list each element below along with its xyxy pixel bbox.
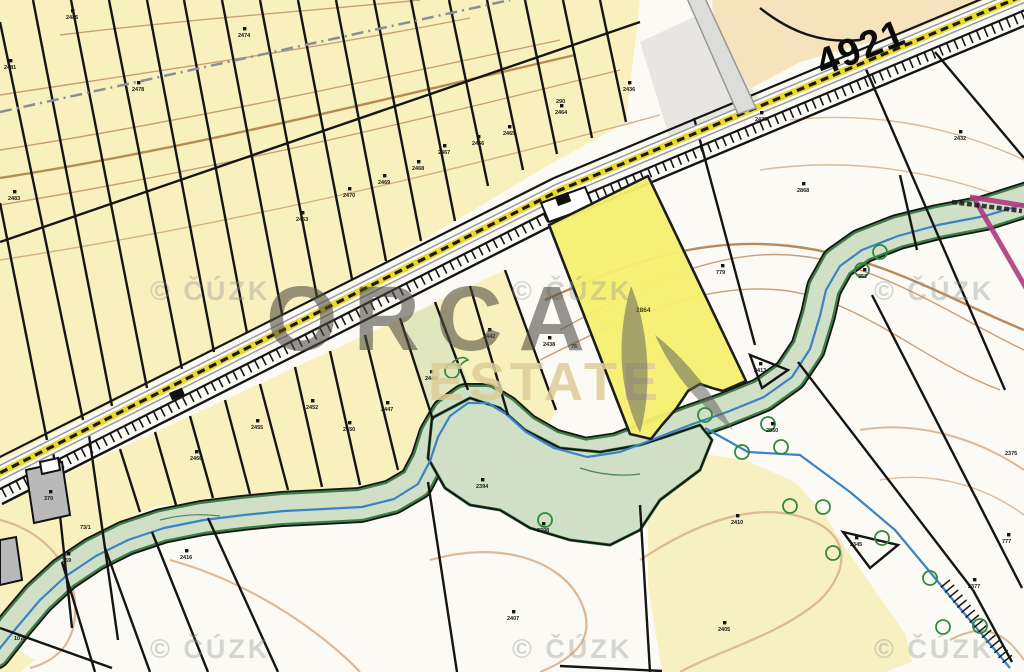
cuzk-copyright-watermark: © ČÚZK bbox=[150, 275, 270, 306]
cuzk-copyright-watermark: © ČÚZK bbox=[512, 633, 632, 664]
parcel-number: 2375 bbox=[1005, 451, 1017, 457]
landuse-symbol bbox=[760, 111, 763, 114]
parcel-number: 73/1 bbox=[80, 525, 91, 531]
parcel-number: 2465 bbox=[503, 131, 515, 137]
landuse-symbol bbox=[67, 552, 70, 555]
parcel-number: 2466 bbox=[472, 141, 484, 147]
landuse-symbol bbox=[721, 264, 724, 267]
landuse-symbol bbox=[855, 536, 858, 539]
landuse-symbol bbox=[443, 144, 446, 147]
parcel-number: 2394 bbox=[476, 484, 489, 490]
tree-icon bbox=[875, 531, 889, 545]
landuse-symbol bbox=[863, 268, 866, 271]
landuse-symbol bbox=[771, 422, 774, 425]
field-bottom-right bbox=[648, 452, 912, 672]
parcel-number: 2470 bbox=[343, 193, 355, 199]
cuzk-copyright-watermark: © ČÚZK bbox=[150, 633, 270, 664]
landuse-symbol bbox=[386, 401, 389, 404]
parcel-number: 2410 bbox=[731, 520, 743, 526]
parcel-number: 370 bbox=[44, 496, 53, 502]
landuse-symbol bbox=[973, 578, 976, 581]
cadastral-map-viewport: 2864 24812483247824852474246324702469246… bbox=[0, 0, 1024, 672]
landuse-symbol bbox=[243, 27, 246, 30]
landuse-symbol bbox=[723, 621, 726, 624]
parcel-number: 2483 bbox=[8, 196, 20, 202]
parcel-number: 2455 bbox=[251, 425, 263, 431]
parcel-number: 2467 bbox=[438, 150, 450, 156]
building-1-annex bbox=[40, 458, 60, 474]
parcel-number: 2405 bbox=[718, 627, 730, 633]
tree-icon bbox=[816, 500, 830, 514]
landuse-symbol bbox=[71, 9, 74, 12]
parcel-number: 2868 bbox=[797, 188, 809, 194]
parcel-number: 1079 bbox=[14, 636, 26, 642]
landuse-symbol bbox=[348, 187, 351, 190]
landuse-symbol bbox=[542, 522, 545, 525]
parcel-number: 779 bbox=[716, 270, 725, 276]
parcel-number: 2469 bbox=[378, 180, 390, 186]
landuse-symbol bbox=[195, 450, 198, 453]
parcel-number: 777 bbox=[1002, 539, 1011, 545]
parcel-number: 2413 bbox=[754, 368, 766, 374]
landuse-symbol bbox=[512, 610, 515, 613]
landuse-symbol bbox=[759, 362, 762, 365]
parcel-number: 2436 bbox=[623, 87, 635, 93]
parcel-number: 2416 bbox=[180, 555, 192, 561]
parcel-number: 2430 bbox=[755, 117, 767, 123]
landuse-symbol bbox=[481, 478, 484, 481]
parcel-number: 2432 bbox=[954, 136, 966, 142]
parcel-number: 2474 bbox=[238, 33, 251, 39]
parcel-number: 2850 bbox=[766, 428, 778, 434]
tree-icon bbox=[774, 440, 788, 454]
parcel-number: 2460 bbox=[190, 456, 202, 462]
parcel-number: 2463 bbox=[296, 217, 308, 223]
parcel-number: 2407 bbox=[507, 616, 519, 622]
landuse-symbol bbox=[1007, 533, 1010, 536]
parcel-number: 2345 bbox=[850, 542, 862, 548]
landuse-symbol bbox=[736, 514, 739, 517]
landuse-symbol bbox=[49, 490, 52, 493]
cuzk-copyright-watermark: © ČÚZK bbox=[874, 633, 994, 664]
parcel-number: 2464 bbox=[555, 110, 568, 116]
parcel-number: 290 bbox=[556, 99, 565, 105]
parcel-number: 2447 bbox=[381, 407, 393, 413]
parcel-number: 2450 bbox=[343, 427, 355, 433]
parcel-number: 2377 bbox=[968, 584, 980, 590]
cadastral-map: 2864 24812483247824852474246324702469246… bbox=[0, 0, 1024, 672]
tree-icon bbox=[936, 620, 950, 634]
landuse-symbol bbox=[383, 174, 386, 177]
landuse-symbol bbox=[417, 160, 420, 163]
landuse-symbol bbox=[185, 549, 188, 552]
parcel-number: 2478 bbox=[132, 87, 144, 93]
landuse-symbol bbox=[13, 190, 16, 193]
parcel-number: 2468 bbox=[412, 166, 424, 172]
cuzk-copyright-watermark: © ČÚZK bbox=[874, 275, 994, 306]
landuse-symbol bbox=[802, 182, 805, 185]
parcel-number: 2452 bbox=[306, 405, 318, 411]
landuse-symbol bbox=[959, 130, 962, 133]
landuse-symbol bbox=[477, 135, 480, 138]
landuse-symbol bbox=[628, 81, 631, 84]
landuse-symbol bbox=[348, 421, 351, 424]
parcel-number: 369 bbox=[62, 558, 71, 564]
landuse-symbol bbox=[137, 81, 140, 84]
landuse-symbol bbox=[311, 399, 314, 402]
parcel-number: 2485 bbox=[66, 15, 78, 21]
parcel-number: 2481 bbox=[4, 65, 16, 71]
parcel-number: 2398 bbox=[537, 528, 549, 534]
parcel-number: 352 bbox=[858, 274, 867, 280]
landuse-symbol bbox=[301, 211, 304, 214]
landuse-symbol bbox=[508, 125, 511, 128]
landuse-symbol bbox=[256, 419, 259, 422]
landuse-symbol bbox=[9, 59, 12, 62]
